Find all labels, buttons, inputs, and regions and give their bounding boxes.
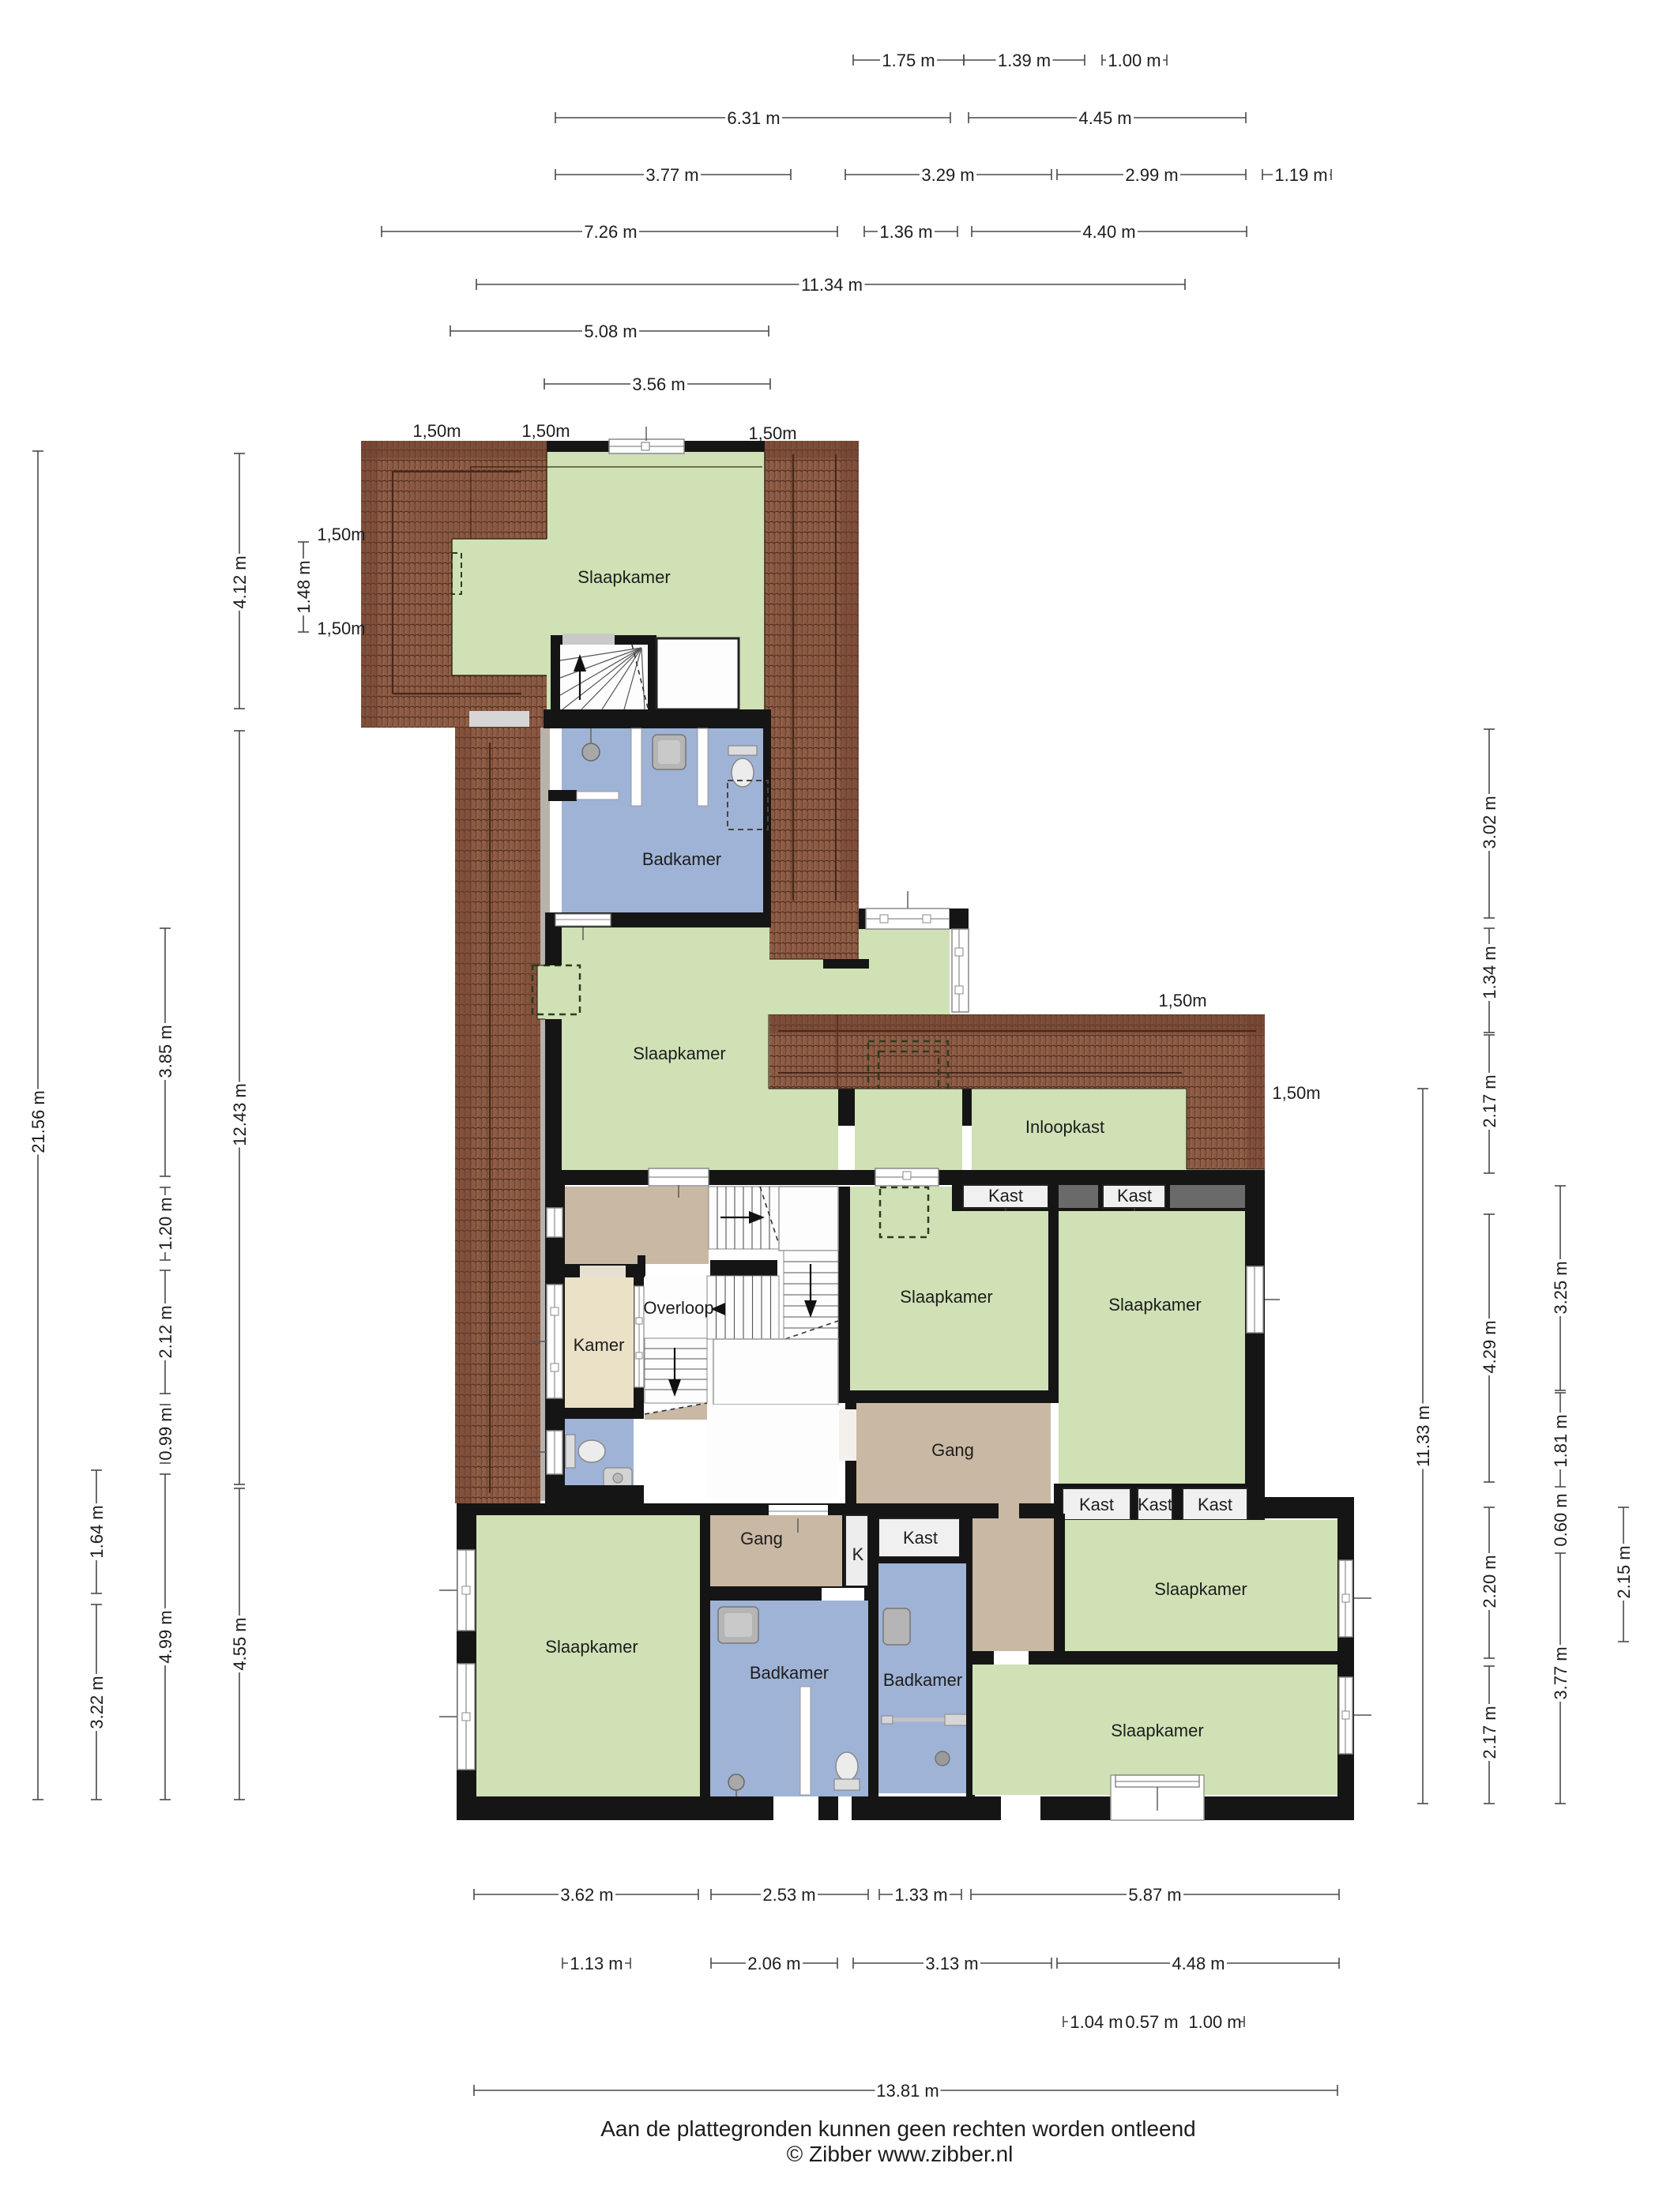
svg-text:4.45 m: 4.45 m [1078,108,1131,128]
svg-text:Badkamer: Badkamer [750,1663,829,1683]
svg-text:4.29 m: 4.29 m [1480,1320,1499,1373]
svg-text:2.15 m: 2.15 m [1614,1545,1634,1598]
svg-text:1.34 m: 1.34 m [1480,946,1499,999]
svg-text:Slaapkamer: Slaapkamer [1154,1579,1247,1599]
svg-text:3.56 m: 3.56 m [632,374,685,394]
svg-text:Kast: Kast [1079,1495,1114,1514]
svg-text:2.53 m: 2.53 m [762,1885,815,1905]
svg-text:1,50m: 1,50m [1158,991,1206,1010]
svg-text:Inloopkast: Inloopkast [1025,1117,1104,1137]
svg-text:1.39 m: 1.39 m [998,51,1051,70]
svg-text:4.55 m: 4.55 m [230,1617,250,1670]
svg-text:1.36 m: 1.36 m [879,222,932,242]
svg-text:7.26 m: 7.26 m [584,222,637,242]
svg-text:1,50m: 1,50m [521,421,570,441]
svg-text:Kast: Kast [1117,1186,1152,1206]
svg-text:3.85 m: 3.85 m [156,1025,175,1078]
svg-text:Slaapkamer: Slaapkamer [1108,1295,1201,1315]
svg-text:2.12 m: 2.12 m [156,1305,175,1358]
svg-text:Aan de plattegronden kunnen ge: Aan de plattegronden kunnen geen rechten… [600,2116,1195,2141]
svg-text:11.33 m: 11.33 m [1413,1405,1433,1467]
svg-text:1.20 m: 1.20 m [156,1197,175,1250]
svg-text:Kamer: Kamer [574,1335,625,1355]
svg-text:Kast: Kast [1138,1495,1172,1514]
svg-text:Slaapkamer: Slaapkamer [545,1637,638,1657]
svg-text:2.17 m: 2.17 m [1480,1074,1499,1127]
svg-text:2.06 m: 2.06 m [747,1954,800,1973]
svg-text:1,50m: 1,50m [412,421,461,441]
svg-text:Overloop: Overloop [643,1298,713,1318]
svg-text:1.64 m: 1.64 m [87,1505,107,1558]
svg-text:4.48 m: 4.48 m [1172,1954,1224,1973]
svg-text:1.19 m: 1.19 m [1274,165,1327,185]
svg-text:Kast: Kast [903,1528,938,1548]
svg-text:12.43 m: 12.43 m [230,1083,250,1146]
svg-text:Gang: Gang [931,1440,974,1460]
svg-text:3.25 m: 3.25 m [1551,1261,1571,1314]
svg-text:4.40 m: 4.40 m [1082,222,1135,242]
svg-text:2.20 m: 2.20 m [1480,1555,1499,1608]
svg-text:3.62 m: 3.62 m [560,1885,613,1905]
svg-text:0.99 m: 0.99 m [156,1407,175,1460]
svg-text:Slaapkamer: Slaapkamer [633,1044,725,1063]
svg-text:Badkamer: Badkamer [642,849,721,869]
svg-text:3.77 m: 3.77 m [1551,1646,1571,1699]
svg-text:1.33 m: 1.33 m [894,1885,947,1905]
svg-text:1,50m: 1,50m [317,525,365,544]
svg-text:1,50m: 1,50m [748,423,796,443]
svg-text:13.81 m: 13.81 m [876,2081,939,2101]
svg-text:1.48 m: 1.48 m [294,560,314,613]
svg-text:Gang: Gang [740,1529,783,1548]
svg-text:Slaapkamer: Slaapkamer [577,567,670,587]
svg-text:3.13 m: 3.13 m [925,1954,978,1973]
svg-text:K: K [852,1544,864,1564]
svg-text:5.87 m: 5.87 m [1128,1885,1181,1905]
svg-text:1,50m: 1,50m [317,619,365,638]
svg-text:3.22 m: 3.22 m [87,1676,107,1729]
svg-text:11.34 m: 11.34 m [801,275,863,295]
svg-text:6.31 m: 6.31 m [727,108,780,128]
svg-text:1.04 m: 1.04 m [1070,2012,1123,2032]
svg-text:4.12 m: 4.12 m [230,555,250,608]
svg-text:3.29 m: 3.29 m [921,165,974,185]
svg-text:1.13 m: 1.13 m [570,1954,623,1973]
svg-text:1.81 m: 1.81 m [1551,1414,1571,1467]
svg-text:0.60 m: 0.60 m [1551,1493,1571,1546]
svg-text:Kast: Kast [1198,1495,1232,1514]
svg-text:0.57 m: 0.57 m [1125,2012,1178,2032]
svg-text:3.02 m: 3.02 m [1480,796,1499,848]
svg-text:Badkamer: Badkamer [883,1670,962,1690]
svg-text:1,50m: 1,50m [1272,1083,1320,1103]
svg-text:1.00 m: 1.00 m [1188,2012,1241,2032]
svg-text:1.00 m: 1.00 m [1108,51,1161,70]
svg-text:1.75 m: 1.75 m [882,51,935,70]
svg-text:21.56 m: 21.56 m [28,1090,48,1153]
svg-text:Slaapkamer: Slaapkamer [900,1287,992,1307]
svg-text:Slaapkamer: Slaapkamer [1111,1721,1203,1740]
svg-text:4.99 m: 4.99 m [156,1610,175,1663]
svg-text:5.08 m: 5.08 m [584,322,637,341]
svg-text:2.17 m: 2.17 m [1480,1706,1499,1759]
svg-text:3.77 m: 3.77 m [645,165,698,185]
svg-text:Kast: Kast [988,1186,1023,1206]
svg-text:© Zibber www.zibber.nl: © Zibber www.zibber.nl [787,2142,1014,2166]
svg-text:2.99 m: 2.99 m [1125,165,1178,185]
